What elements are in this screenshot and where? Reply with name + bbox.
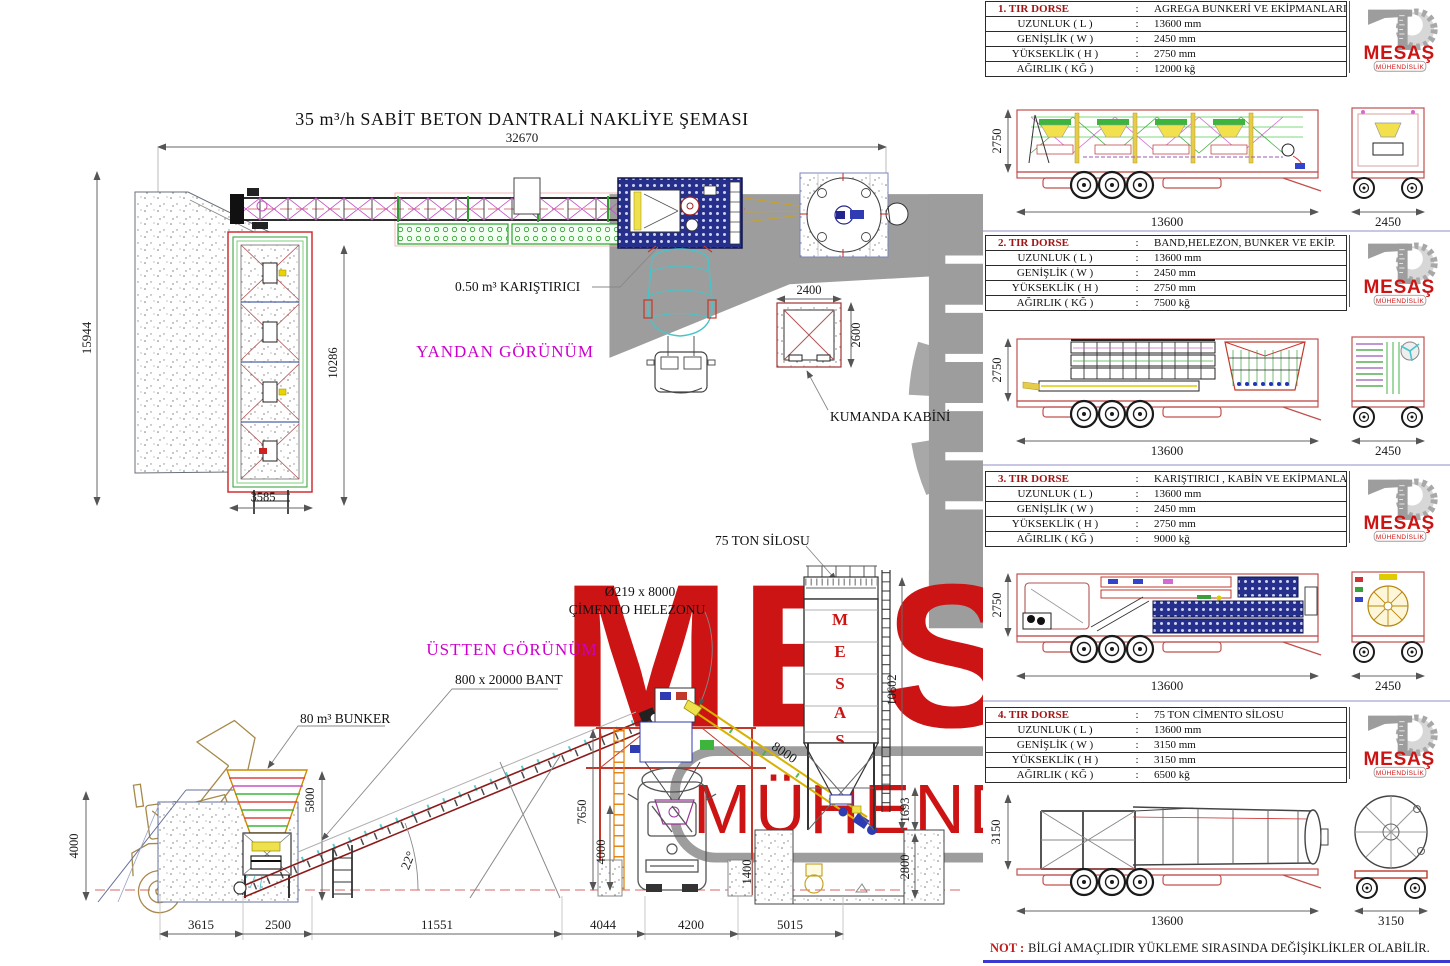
colon: :: [1124, 533, 1150, 545]
row-value: 2450 mm: [1150, 503, 1346, 515]
svg-text:S: S: [835, 674, 844, 693]
dim-total-height: 15944: [79, 321, 94, 354]
row-label: UZUNLUK ( L ): [986, 724, 1124, 736]
table-row: GENİŞLİK ( W ) : 2450 mm: [985, 501, 1347, 517]
svg-text:M: M: [832, 610, 848, 629]
trailer-cargo: BAND,HELEZON, BUNKER VE EKİP.: [1150, 237, 1346, 249]
colon: :: [1124, 63, 1150, 75]
table-row: UZUNLUK ( L ) : 13600 mm: [985, 250, 1347, 266]
cargo-mixer-cabin: [1023, 577, 1317, 633]
row-value: 12000 kğ: [1150, 63, 1346, 75]
row-value: 2750 mm: [1150, 48, 1346, 60]
colon: :: [1124, 473, 1150, 485]
dim-seg5: 4200: [678, 917, 704, 932]
table-row: 4. TIR DORSE : 75 TON CİMENTO SİLOSU: [985, 707, 1347, 723]
cargo-aggregate-bunker: [1029, 113, 1305, 169]
cargo-silo: [1041, 807, 1328, 869]
row-label: YÜKSEKLİK ( H ): [986, 518, 1124, 530]
panel-logo: [1349, 471, 1449, 543]
silo-label: 75 TON SİLOSU: [715, 533, 810, 548]
trailer-4-table: 4. TIR DORSE : 75 TON CİMENTO SİLOSU UZU…: [985, 708, 1347, 783]
footer-note: NOT :BİLGİ AMAÇLIDIR YÜKLEME SIRASINDA D…: [990, 941, 1445, 956]
dim-pit-depth: 2800: [898, 855, 912, 880]
row-value: 3150 mm: [1150, 739, 1346, 751]
row-label: AĞIRLIK ( KĞ ): [986, 297, 1124, 309]
trailer-panel-2: 2. TIR DORSE : BAND,HELEZON, BUNKER VE E…: [983, 235, 1450, 463]
trailer-panel-1: 1. TIR DORSE : AGREGA BUNKERİ VE EKİPMAN…: [983, 1, 1450, 234]
note-prefix: NOT :: [990, 941, 1024, 955]
truck-dim-length: 13600: [1151, 214, 1184, 229]
panel-separator: [983, 464, 1450, 466]
svg-text:A: A: [834, 703, 847, 722]
trailer-3-table: 3. TIR DORSE : KARIŞTIRICI , KABİN VE EK…: [985, 472, 1347, 547]
dim-total-length: 32670: [506, 130, 539, 145]
cargo-band-helezon-bunker: [1023, 340, 1305, 391]
side-view: 32670 15944: [79, 130, 951, 514]
row-label: GENİŞLİK ( W ): [986, 503, 1124, 515]
top-view-label: ÜSTTEN GÖRÜNÜM: [426, 640, 597, 659]
trailer-no: 4. TIR DORSE: [986, 709, 1124, 721]
row-label: AĞIRLIK ( KĞ ): [986, 769, 1124, 781]
row-label: YÜKSEKLİK ( H ): [986, 48, 1124, 60]
colon: :: [1124, 18, 1150, 30]
trailer-cargo: KARIŞTIRICI , KABİN VE EKİPMANLARI: [1150, 473, 1346, 485]
colon: :: [1124, 518, 1150, 530]
row-label: AĞIRLIK ( KĞ ): [986, 533, 1124, 545]
truck-dim-length: 13600: [1151, 913, 1184, 928]
colon: :: [1124, 739, 1150, 751]
row-label: GENİŞLİK ( W ): [986, 33, 1124, 45]
truck-dim-height: 2750: [990, 129, 1004, 154]
dim-belt-angle: 22°: [397, 849, 418, 871]
colon: :: [1124, 282, 1150, 294]
row-label: UZUNLUK ( L ): [986, 488, 1124, 500]
truck-dim-width: 2450: [1375, 443, 1401, 458]
trailer-no: 1. TIR DORSE: [986, 3, 1124, 15]
panel-logo: [1349, 1, 1449, 73]
bottom-dim-chain: 3615 2500 11551 4044 4200 5015: [160, 896, 843, 940]
colon: :: [1124, 488, 1150, 500]
dim-seg6: 5015: [777, 917, 803, 932]
panel-logo: [1349, 235, 1449, 307]
truck-dim-height: 3150: [989, 820, 1003, 845]
row-value: 13600 mm: [1150, 724, 1346, 736]
colon: :: [1124, 769, 1150, 781]
trailer-cargo: AGREGA BUNKERİ VE EKİPMANLARI: [1150, 3, 1346, 15]
dim-seg1: 3615: [188, 917, 214, 932]
trailer-no: 2. TIR DORSE: [986, 237, 1124, 249]
trailer-side: [1017, 869, 1321, 895]
helezon-label-1: Ø219 x 8000: [605, 584, 676, 599]
row-value: 6500 kğ: [1150, 769, 1346, 781]
table-row: YÜKSEKLİK ( H ) : 3150 mm: [985, 752, 1347, 768]
note-text: BİLGİ AMAÇLIDIR YÜKLEME SIRASINDA DEĞİŞİ…: [1028, 941, 1430, 955]
row-value: 2750 mm: [1150, 282, 1346, 294]
truck-dim-width: 2450: [1375, 678, 1401, 693]
row-value: 13600 mm: [1150, 252, 1346, 264]
row-label: UZUNLUK ( L ): [986, 18, 1124, 30]
colon: :: [1124, 48, 1150, 60]
trailer-side: [1017, 172, 1321, 198]
trailer-2-table: 2. TIR DORSE : BAND,HELEZON, BUNKER VE E…: [985, 236, 1347, 311]
row-value: 9000 kğ: [1150, 533, 1346, 545]
table-row: YÜKSEKLİK ( H ) : 2750 mm: [985, 516, 1347, 532]
table-row: AĞIRLIK ( KĞ ) : 12000 kğ: [985, 61, 1347, 77]
trailer-rear: [1355, 796, 1427, 898]
row-label: AĞIRLIK ( KĞ ): [986, 63, 1124, 75]
drawing-sheet: MESAŞ MÜHENDİSLİK 35 m³/h SABİT BETON DA…: [0, 0, 1450, 966]
table-row: GENİŞLİK ( W ) : 2450 mm: [985, 31, 1347, 47]
row-label: GENİŞLİK ( W ): [986, 739, 1124, 751]
row-value: 13600 mm: [1150, 488, 1346, 500]
row-value: 3150 mm: [1150, 754, 1346, 766]
table-row: AĞIRLIK ( KĞ ) : 7500 kğ: [985, 295, 1347, 311]
trailer-panel-3: 3. TIR DORSE : KARIŞTIRICI , KABİN VE EK…: [983, 471, 1450, 699]
colon: :: [1124, 503, 1150, 515]
panel-separator: [983, 230, 1450, 232]
colon: :: [1124, 237, 1150, 249]
main-drawing: 35 m³/h SABİT BETON DANTRALİ NAKLİYE ŞEM…: [0, 0, 983, 966]
trailer-side: [1017, 401, 1321, 427]
top-view: ÜSTTEN GÖRÜNÜM 800 x 20000 BANT 80 m³ BU…: [67, 533, 962, 940]
row-label: YÜKSEKLİK ( H ): [986, 754, 1124, 766]
panel-separator: [983, 700, 1450, 702]
table-row: UZUNLUK ( L ) : 13600 mm: [985, 486, 1347, 502]
dim-bunker-height: 5800: [303, 788, 317, 813]
page-title: 35 m³/h SABİT BETON DANTRALİ NAKLİYE ŞEM…: [295, 109, 749, 129]
dim-seg3: 11551: [421, 917, 453, 932]
dim-seg4: 4044: [590, 917, 617, 932]
trailer-1-table: 1. TIR DORSE : AGREGA BUNKERİ VE EKİPMAN…: [985, 2, 1347, 77]
truck-dim-height: 2750: [990, 593, 1004, 618]
row-label: GENİŞLİK ( W ): [986, 267, 1124, 279]
colon: :: [1124, 252, 1150, 264]
trailer-rear: [1352, 572, 1424, 662]
colon: :: [1124, 267, 1150, 279]
belt-label: 800 x 20000 BANT: [455, 672, 563, 687]
row-label: UZUNLUK ( L ): [986, 252, 1124, 264]
truck-dim-width: 2450: [1375, 214, 1401, 229]
trailer-side: [1017, 636, 1321, 662]
side-view-label: YANDAN GÖRÜNÜM: [416, 342, 594, 361]
dim-footing: 1400: [740, 860, 754, 885]
row-label: YÜKSEKLİK ( H ): [986, 282, 1124, 294]
row-value: 2750 mm: [1150, 518, 1346, 530]
trailer-4-drawing: 3150 13600 3150: [983, 785, 1450, 935]
colon: :: [1124, 297, 1150, 309]
row-value: 2450 mm: [1150, 267, 1346, 279]
dim-bunker-length: 10286: [326, 347, 340, 378]
dim-plant-height: 7650: [575, 800, 589, 825]
aggregate-bunker-plan: [228, 232, 312, 514]
table-row: 1. TIR DORSE : AGREGA BUNKERİ VE EKİPMAN…: [985, 1, 1347, 17]
control-cabin-plan: [777, 303, 841, 367]
row-value: 2450 mm: [1150, 33, 1346, 45]
dim-silo-height: 10602: [885, 674, 899, 705]
dim-cabin-width: 2400: [797, 283, 822, 297]
svg-text:E: E: [834, 642, 845, 661]
table-row: GENİŞLİK ( W ) : 2450 mm: [985, 265, 1347, 281]
trailer-2-drawing: 2750 13600 2450: [983, 322, 1450, 463]
panel-logo: [1349, 707, 1449, 779]
colon: :: [1124, 724, 1150, 736]
bottom-rule: [983, 960, 1450, 963]
table-row: AĞIRLIK ( KĞ ) : 6500 kğ: [985, 767, 1347, 783]
colon: :: [1124, 754, 1150, 766]
helezon-label-2: ÇİMENTO HELEZONU: [569, 602, 706, 617]
dim-silo-legs: 1693: [898, 798, 912, 823]
dim-seg2: 2500: [265, 917, 291, 932]
mixer-label: 0.50 m³ KARIŞTIRICI: [455, 279, 581, 294]
trailer-panel-4: 4. TIR DORSE : 75 TON CİMENTO SİLOSU UZU…: [983, 707, 1450, 937]
table-row: UZUNLUK ( L ) : 13600 mm: [985, 16, 1347, 32]
truck-dim-length: 13600: [1151, 443, 1184, 458]
row-value: 7500 kğ: [1150, 297, 1346, 309]
bunker-label: 80 m³ BUNKER: [300, 711, 390, 726]
table-row: AĞIRLIK ( KĞ ) : 9000 kğ: [985, 531, 1347, 547]
dim-cabin-depth: 2600: [849, 323, 863, 348]
trailer-rear: [1352, 337, 1424, 427]
trailer-rear: [1352, 108, 1424, 198]
cabin-label: KUMANDA KABİNİ: [830, 409, 951, 424]
trailer-no: 3. TIR DORSE: [986, 473, 1124, 485]
dim-clearance: 4000: [594, 840, 608, 865]
table-row: GENİŞLİK ( W ) : 3150 mm: [985, 737, 1347, 753]
table-row: UZUNLUK ( L ) : 13600 mm: [985, 722, 1347, 738]
colon: :: [1124, 33, 1150, 45]
table-row: YÜKSEKLİK ( H ) : 2750 mm: [985, 280, 1347, 296]
dim-ramp-height: 4000: [67, 834, 81, 859]
mixer-platform-plan: [618, 178, 742, 248]
truck-dim-length: 13600: [1151, 678, 1184, 693]
row-value: 13600 mm: [1150, 18, 1346, 30]
trailer-cargo: 75 TON CİMENTO SİLOSU: [1150, 709, 1346, 721]
truck-dim-width: 3150: [1378, 913, 1404, 928]
table-row: 2. TIR DORSE : BAND,HELEZON, BUNKER VE E…: [985, 235, 1347, 251]
dim-bunker-width: 3585: [251, 490, 276, 504]
table-row: YÜKSEKLİK ( H ) : 2750 mm: [985, 46, 1347, 62]
truck-dim-height: 2750: [990, 358, 1004, 383]
table-row: 3. TIR DORSE : KARIŞTIRICI , KABİN VE EK…: [985, 471, 1347, 487]
colon: :: [1124, 3, 1150, 15]
trailer-1-drawing: 2750 13600 2450: [983, 93, 1450, 234]
colon: :: [1124, 709, 1150, 721]
trailer-3-drawing: 2750 13600 2450: [983, 557, 1450, 698]
